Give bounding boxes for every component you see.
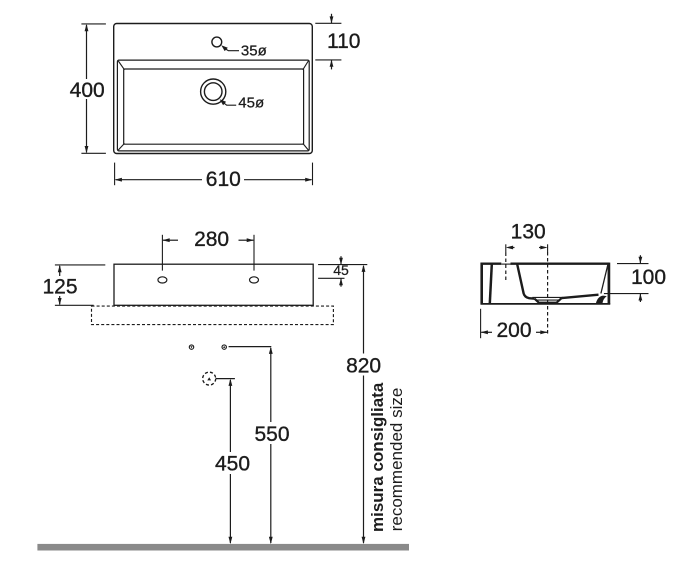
svg-text:100: 100 — [631, 266, 666, 289]
svg-text:200: 200 — [496, 319, 531, 342]
svg-text:450: 450 — [215, 452, 250, 475]
svg-text:45: 45 — [333, 262, 349, 278]
svg-text:280: 280 — [194, 228, 229, 251]
svg-text:45ø: 45ø — [238, 95, 264, 112]
svg-text:400: 400 — [70, 79, 105, 102]
svg-text:110: 110 — [327, 30, 360, 53]
svg-text:610: 610 — [206, 168, 241, 191]
svg-text:misura consigliata: misura consigliata — [368, 382, 387, 532]
svg-text:recommended size: recommended size — [387, 388, 406, 532]
svg-text:35ø: 35ø — [241, 43, 267, 60]
svg-text:550: 550 — [254, 423, 289, 446]
svg-text:820: 820 — [346, 355, 381, 378]
svg-text:125: 125 — [42, 276, 77, 299]
svg-text:130: 130 — [511, 220, 546, 243]
